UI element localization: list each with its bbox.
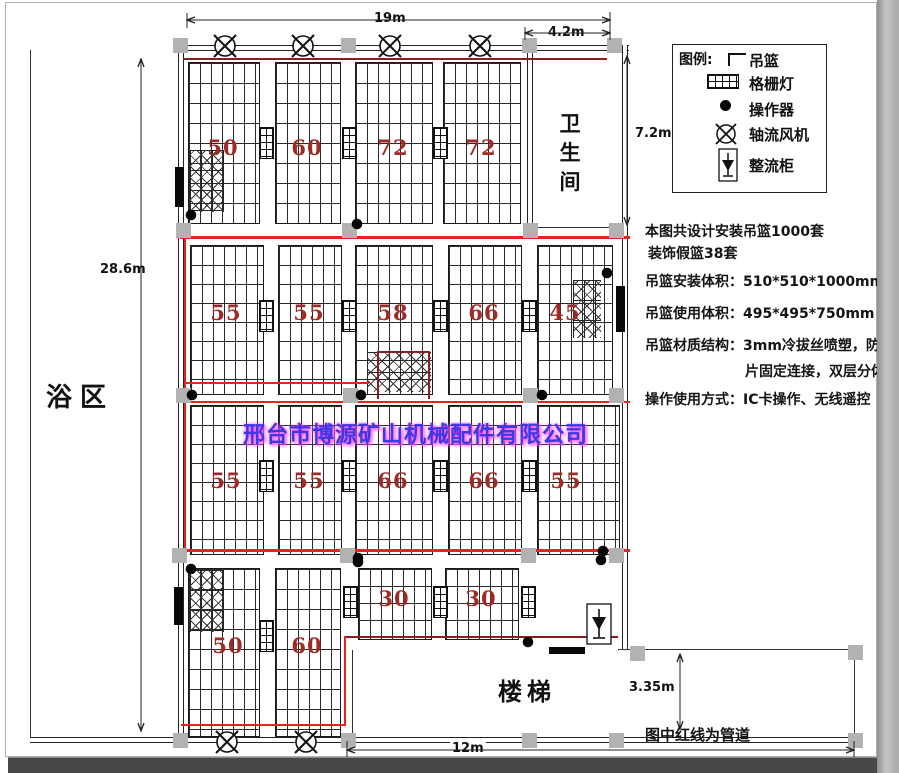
column [176,223,191,238]
pipe-line [181,724,345,726]
column [342,223,357,238]
column [521,548,536,563]
room-label-toilet: 卫生间 [558,110,582,197]
right-scrollbar[interactable] [877,0,899,773]
legend: 图例: 吊篮 格栅灯 操作器 轴流风机 整流柜 [672,44,827,193]
pipe-line [183,58,607,60]
note-line: 片固定连接，双层分体式 [745,361,899,381]
column [607,38,622,53]
dim-bottom-width: 12m [450,741,486,756]
dim-left-height: 28.6m [98,262,148,277]
note-line: 吊篮材质结构：3mm冷拔丝喷塑，防锈铆 [645,335,899,355]
basket-count: 55 [293,468,324,493]
pipe-line [185,382,369,384]
basket-count: 72 [465,135,496,160]
grille-light-icon [342,300,357,332]
dim-toilet-width: 4.2m [546,25,587,40]
pipe-line [345,636,618,638]
column [343,388,358,403]
basket-count: 30 [378,586,409,611]
room-label-stairs: 楼梯 [498,672,556,707]
grille-light-icon [521,586,536,618]
basket-icon [728,53,746,66]
grille-light-icon [259,300,274,332]
wall-far-left [30,50,31,738]
column [848,733,863,748]
hatch-area [190,570,224,632]
basket-count: 55 [210,468,241,493]
pipe-line [180,549,630,552]
wall-stairs-inner [352,650,353,737]
note-line: 吊篮使用体积：495*495*750mm [645,303,875,323]
basket-count: 66 [468,468,499,493]
column [609,733,624,748]
basket-count: 66 [377,468,408,493]
legend-item-label: 操作器 [749,99,794,120]
grille-light-icon [259,620,274,652]
column [523,388,538,403]
grille-light-icon [343,586,358,618]
basket-count: 55 [293,300,324,325]
grille-light-icon [259,127,274,159]
basket-count: 50 [207,135,238,160]
cable-bar [175,167,184,207]
basket-count: 58 [377,300,408,325]
room-label-bath-area: 浴区 [46,377,114,414]
basket-count: 50 [212,633,243,658]
watermark-company-name: 邢台市博源矿山机械配件有限公司 [243,417,588,449]
footer-note: 图中红线为管道 [645,724,750,745]
grille-light-icon [433,300,448,332]
column [609,548,624,563]
basket-count: 55 [210,300,241,325]
wall-stairs-top [618,649,855,650]
basket-count: 60 [291,633,322,658]
cad-floorplan-screenshot: 50 60 72 72 55 55 58 66 45 55 55 66 66 5… [0,0,899,773]
basket-count: 60 [291,135,322,160]
window-bottom-edge [8,757,878,773]
column [173,38,188,53]
dim-toilet-height: 7.2m [633,126,674,141]
note-line: 本图共设计安装吊篮1000套 [645,221,824,241]
column [522,38,537,53]
legend-item-label: 整流柜 [749,155,794,176]
pipe-line [377,351,430,353]
cable-bar [616,286,625,332]
grille-light-icon [342,127,357,159]
grille-light-icon [707,74,739,89]
column [523,223,538,238]
cable-bar [549,647,585,654]
column [172,548,187,563]
pipe-line [180,236,630,239]
cable-bar [174,587,183,625]
column [341,733,356,748]
column [173,733,188,748]
pipe-line [377,351,379,399]
column [609,223,624,238]
wall-stairs-right [854,650,855,738]
grille-light-icon [522,460,537,492]
rectifier-icon [718,148,738,182]
wall-toilet-left [527,51,533,231]
legend-item-label: 吊篮 [749,50,779,71]
column [341,38,356,53]
axial-fan-icon [713,121,739,147]
column [522,733,537,748]
grille-light-icon [433,460,448,492]
pipe-line [428,351,430,399]
grille-light-icon [259,460,274,492]
legend-item-label: 格栅灯 [749,73,794,94]
note-line: 操作使用方式：IC卡操作、无线遥控 [645,389,870,409]
column [176,388,191,403]
column [609,388,624,403]
basket-count: 45 [549,300,580,325]
column [848,645,863,660]
basket-count: 55 [550,468,581,493]
grille-light-icon [433,127,448,159]
column [340,548,355,563]
basket-count: 66 [468,300,499,325]
grille-light-icon [342,460,357,492]
dim-top-width: 19m [372,11,408,26]
operator-icon [720,100,731,111]
note-line: 装饰假篮38套 [648,243,737,263]
basket-count: 72 [377,135,408,160]
pipe-line [183,401,630,403]
pipe-line [344,636,346,726]
dim-stairs-height: 3.35m [627,680,677,695]
grille-light-icon [522,300,537,332]
column [630,646,645,661]
note-line: 吊篮安装体积：510*510*1000mm [645,271,884,291]
basket-count: 30 [465,586,496,611]
grille-light-icon [433,586,448,618]
legend-title: 图例: [679,49,713,69]
legend-item-label: 轴流风机 [749,124,809,145]
wall-top [175,45,629,51]
